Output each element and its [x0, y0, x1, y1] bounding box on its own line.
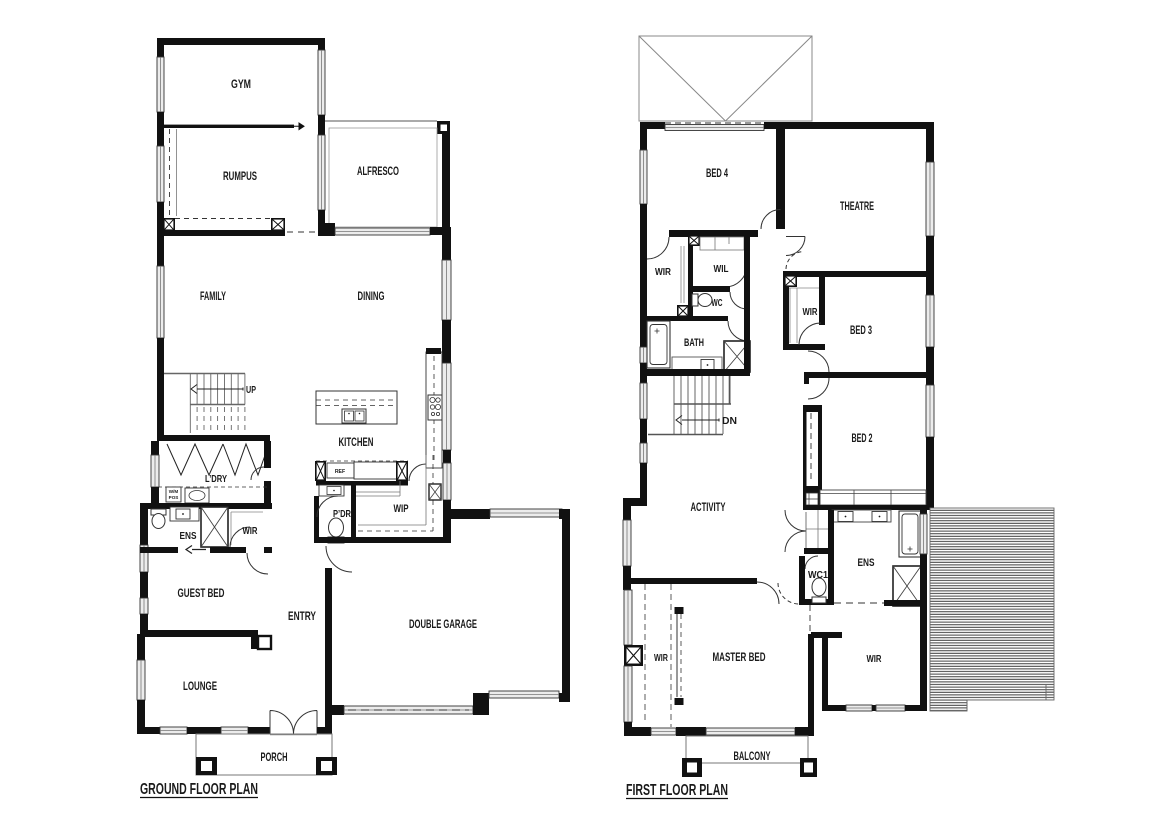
svg-text:ENTRY: ENTRY	[288, 609, 316, 623]
svg-text:BED 4: BED 4	[706, 166, 728, 180]
svg-text:REF: REF	[335, 469, 345, 475]
svg-text:WIR: WIR	[655, 266, 671, 278]
svg-text:WC: WC	[712, 297, 723, 309]
svg-text:PORCH: PORCH	[261, 750, 288, 764]
svg-text:BATH: BATH	[684, 337, 704, 349]
svg-text:GROUND FLOOR PLAN: GROUND FLOOR PLAN	[140, 781, 258, 798]
svg-text:WIR: WIR	[243, 525, 258, 537]
svg-text:BED 3: BED 3	[850, 323, 872, 337]
svg-text:DINING: DINING	[358, 289, 385, 303]
svg-text:BED 2: BED 2	[852, 431, 873, 445]
svg-text:ALFRESCO: ALFRESCO	[357, 164, 399, 178]
svg-text:FIRST FLOOR PLAN: FIRST FLOOR PLAN	[626, 782, 728, 799]
svg-text:GYM: GYM	[231, 77, 251, 91]
svg-text:UP: UP	[246, 384, 256, 396]
svg-text:ACTIVITY: ACTIVITY	[691, 500, 726, 514]
svg-text:RUMPUS: RUMPUS	[223, 169, 257, 183]
svg-text:WIL: WIL	[714, 263, 729, 275]
svg-text:ENS: ENS	[858, 557, 875, 569]
svg-text:GUEST BED: GUEST BED	[178, 586, 225, 600]
svg-text:DN: DN	[722, 415, 737, 427]
svg-text:DOUBLE GARAGE: DOUBLE GARAGE	[409, 617, 477, 631]
svg-text:BALCONY: BALCONY	[734, 749, 771, 763]
svg-text:POS: POS	[169, 495, 179, 500]
svg-text:WIR: WIR	[654, 652, 668, 664]
svg-text:WIR: WIR	[867, 653, 882, 665]
svg-text:KITCHEN: KITCHEN	[339, 435, 374, 449]
svg-text:FAMILY: FAMILY	[200, 289, 226, 303]
svg-text:W/M: W/M	[169, 489, 179, 494]
svg-text:WC1: WC1	[808, 569, 828, 581]
svg-text:WIR: WIR	[803, 306, 818, 318]
svg-text:ENS: ENS	[180, 530, 197, 542]
svg-text:WIP: WIP	[394, 503, 409, 515]
svg-text:LOUNGE: LOUNGE	[183, 679, 217, 693]
svg-text:MASTER BED: MASTER BED	[713, 650, 766, 664]
svg-text:THEATRE: THEATRE	[840, 199, 874, 213]
svg-text:L’DRY: L’DRY	[205, 473, 227, 485]
